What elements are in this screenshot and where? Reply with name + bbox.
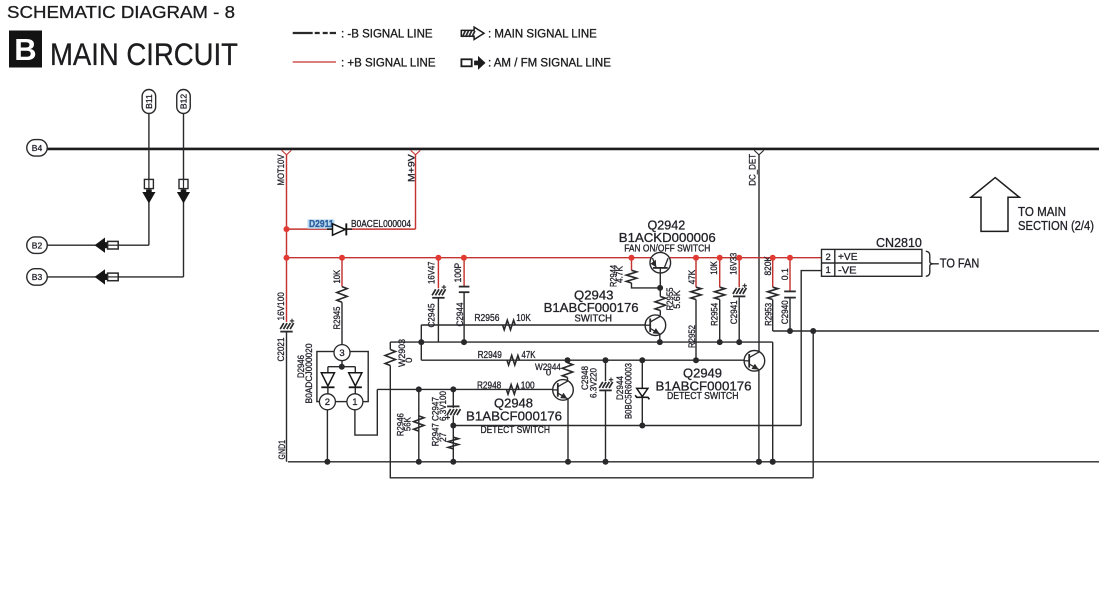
svg-text:B11: B11 (144, 94, 154, 109)
svg-text:B0BC5R600003: B0BC5R600003 (623, 363, 634, 419)
svg-text:B12: B12 (179, 94, 189, 110)
svg-text:: +B SIGNAL LINE: : +B SIGNAL LINE (341, 58, 436, 70)
svg-text:10K: 10K (516, 313, 531, 324)
svg-text:R2945: R2945 (332, 307, 343, 330)
svg-text:C2940: C2940 (780, 300, 791, 324)
svg-text:-VE: -VE (838, 266, 857, 277)
svg-text:1: 1 (352, 397, 357, 408)
svg-text:2: 2 (325, 397, 330, 408)
svg-text:DETECT SWITCH: DETECT SWITCH (481, 425, 551, 436)
svg-text:: AM / FM SIGNAL LINE: : AM / FM SIGNAL LINE (488, 58, 611, 70)
svg-text:47K: 47K (687, 269, 698, 284)
svg-text:47K: 47K (522, 350, 536, 361)
svg-text:FAN ON/OFF SWITCH: FAN ON/OFF SWITCH (624, 243, 710, 254)
svg-text:2: 2 (825, 252, 830, 263)
svg-text:C2944: C2944 (455, 303, 466, 327)
svg-text:DETECT SWITCH: DETECT SWITCH (667, 391, 739, 402)
svg-text:+VE: +VE (838, 252, 858, 263)
svg-text:SCHEMATIC DIAGRAM - 8: SCHEMATIC DIAGRAM - 8 (7, 2, 235, 22)
svg-text:0: 0 (546, 367, 551, 378)
svg-text:5.6K: 5.6K (672, 290, 683, 309)
svg-text:: -B SIGNAL LINE: : -B SIGNAL LINE (341, 29, 433, 41)
svg-text:6.3V100: 6.3V100 (438, 391, 449, 421)
svg-text:16V100: 16V100 (276, 292, 287, 320)
svg-text:B0ADCJ000020: B0ADCJ000020 (304, 344, 314, 404)
svg-text:R2956: R2956 (474, 313, 499, 324)
svg-text:M+9V: M+9V (407, 154, 418, 182)
svg-text:B2: B2 (32, 240, 43, 250)
svg-text:MOT10V: MOT10V (276, 154, 287, 186)
svg-text:B0ACEL000004: B0ACEL000004 (351, 219, 411, 230)
svg-text:27: 27 (438, 433, 449, 443)
svg-text:6.3V220: 6.3V220 (589, 368, 600, 398)
svg-text:B: B (14, 32, 36, 67)
svg-text:16V47: 16V47 (427, 262, 438, 285)
svg-text:: MAIN SIGNAL LINE: : MAIN SIGNAL LINE (488, 29, 597, 41)
svg-text:4.7K: 4.7K (615, 265, 626, 283)
svg-text:B3: B3 (32, 272, 43, 282)
svg-text:10K: 10K (332, 269, 343, 283)
svg-text:56K: 56K (403, 417, 414, 432)
svg-text:DC_DET: DC_DET (748, 154, 759, 186)
svg-text:C2945: C2945 (427, 304, 438, 328)
svg-text:MAIN CIRCUIT: MAIN CIRCUIT (50, 36, 238, 72)
svg-text:TO FAN: TO FAN (940, 256, 980, 270)
svg-text:SECTION (2/4): SECTION (2/4) (1018, 218, 1094, 233)
svg-text:R2949: R2949 (478, 350, 503, 361)
svg-text:1: 1 (825, 265, 830, 276)
svg-text:GND1: GND1 (277, 440, 287, 460)
svg-text:B1ABCF000176: B1ABCF000176 (466, 408, 562, 423)
svg-text:C2941: C2941 (729, 300, 740, 324)
svg-text:C2021: C2021 (276, 338, 287, 362)
svg-text:3: 3 (339, 348, 344, 359)
svg-text:0: 0 (404, 358, 415, 363)
svg-text:TO MAIN: TO MAIN (1018, 204, 1066, 219)
svg-text:100: 100 (521, 380, 535, 391)
svg-text:SWITCH: SWITCH (575, 313, 613, 324)
svg-text:CN2810: CN2810 (876, 235, 922, 250)
svg-text:10K: 10K (709, 261, 720, 275)
svg-text:100P: 100P (453, 263, 464, 283)
svg-text:R2952: R2952 (687, 325, 698, 348)
svg-text:R2948: R2948 (477, 380, 502, 391)
svg-text:R2954: R2954 (710, 303, 721, 326)
svg-text:B4: B4 (32, 143, 43, 153)
svg-text:0.1: 0.1 (780, 268, 791, 280)
svg-text:R2953: R2953 (764, 303, 775, 326)
